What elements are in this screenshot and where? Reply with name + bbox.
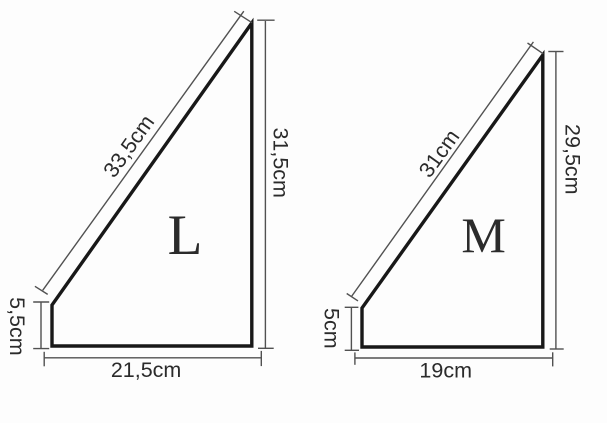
svg-text:31,5cm: 31,5cm (269, 127, 293, 198)
svg-text:29,5cm: 29,5cm (560, 124, 584, 195)
svg-text:5cm: 5cm (319, 308, 343, 349)
svg-text:21,5cm: 21,5cm (111, 358, 182, 382)
svg-text:5,5cm: 5,5cm (5, 297, 29, 356)
svg-text:M: M (461, 207, 505, 263)
svg-text:19cm: 19cm (419, 359, 472, 383)
svg-text:L: L (168, 204, 203, 267)
